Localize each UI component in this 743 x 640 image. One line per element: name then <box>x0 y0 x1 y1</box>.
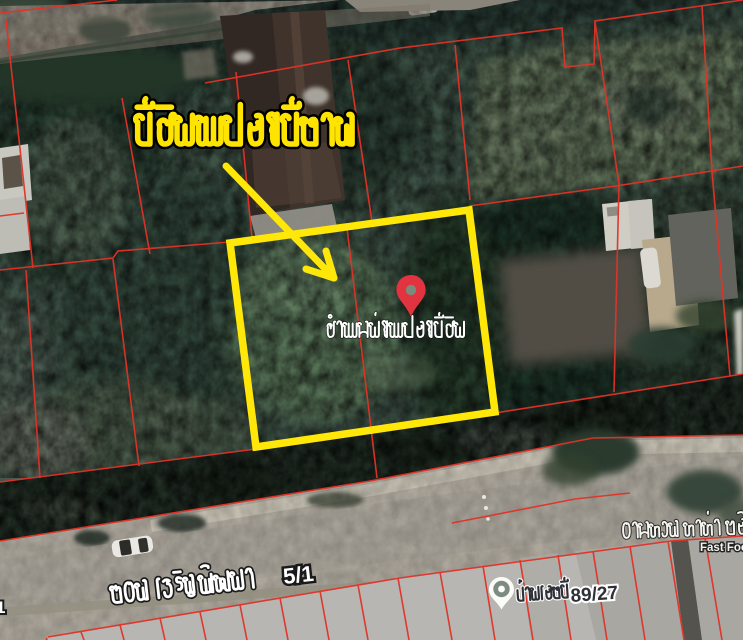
svg-text:Fast Foo: Fast Foo <box>700 542 743 554</box>
svg-text:1: 1 <box>0 598 5 617</box>
svg-text:5/1: 5/1 <box>282 561 315 589</box>
svg-text:89/27: 89/27 <box>570 583 619 607</box>
